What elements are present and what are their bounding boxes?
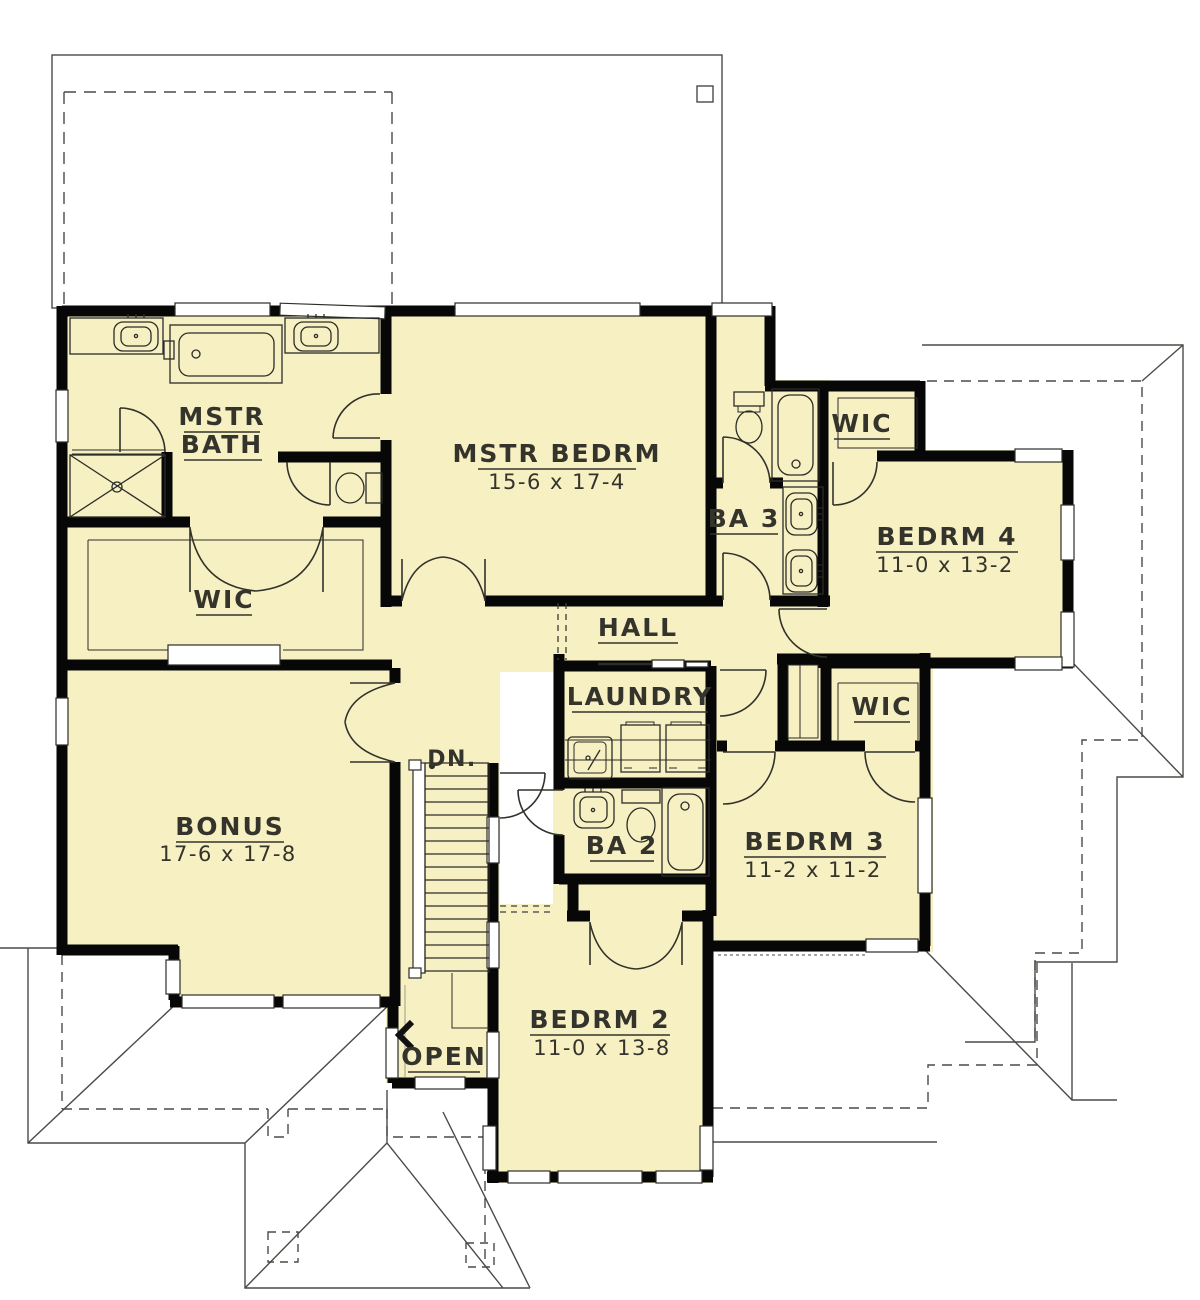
window	[483, 1126, 496, 1170]
window	[455, 303, 640, 316]
laundry-rod-bracket	[686, 662, 708, 667]
window	[175, 303, 270, 316]
room-label-bedrm4: BEDRM 4	[876, 522, 1017, 551]
room-label-hall: HALL	[598, 613, 678, 642]
room-label-bonus: BONUS	[175, 812, 285, 841]
stair-railing	[413, 763, 425, 973]
room-dims-bedrm4: 11-0 x 13-2	[876, 553, 1014, 577]
room-label-wic-master: WIC	[193, 585, 254, 614]
window	[866, 939, 918, 952]
floor-plan-drawing: MSTR BATH MSTR BEDRM 15-6 x 17-4 WIC BA …	[0, 0, 1200, 1300]
room-label-mstr-bath-2: BATH	[181, 430, 263, 459]
room-label-laundry: LAUNDRY	[567, 682, 713, 711]
roof-top-outline	[52, 55, 722, 308]
roof-right-lower-dashed	[713, 963, 1037, 1108]
window	[1061, 612, 1074, 667]
room-label-wic-bedrm4: WIC	[831, 409, 892, 438]
window	[700, 1126, 713, 1170]
room-label-mstr-bedrm: MSTR BEDRM	[453, 439, 662, 468]
room-label-open: OPEN	[401, 1042, 487, 1071]
room-dims-mstr-bedrm: 15-6 x 17-4	[488, 470, 626, 494]
window	[712, 303, 772, 316]
chimney-marker	[697, 86, 713, 102]
floor-plan-page: MSTR BATH MSTR BEDRM 15-6 x 17-4 WIC BA …	[0, 0, 1200, 1300]
window	[558, 1171, 642, 1183]
laundry-rod-bracket	[652, 660, 684, 668]
room-dims-bonus: 17-6 x 17-8	[159, 842, 297, 866]
window	[508, 1171, 550, 1183]
room-label-bedrm2: BEDRM 2	[529, 1005, 670, 1034]
room-label-bedrm3: BEDRM 3	[744, 827, 885, 856]
room-dims-bedrm3: 11-2 x 11-2	[744, 858, 882, 882]
newel-post	[409, 760, 421, 770]
window	[1015, 657, 1062, 670]
window	[918, 798, 932, 893]
stairs-dn-label: DN.	[427, 747, 477, 772]
window	[56, 698, 68, 745]
window	[56, 390, 68, 442]
room-dims-bedrm2: 11-0 x 13-8	[533, 1036, 671, 1060]
newel-post	[409, 968, 421, 978]
room-label-ba3: BA 3	[708, 504, 781, 533]
window	[182, 995, 274, 1008]
window	[1015, 449, 1062, 462]
window	[487, 1032, 499, 1078]
window	[166, 960, 180, 994]
room-label-wic-bedrm3: WIC	[851, 692, 912, 721]
roof-dashed-notches	[268, 1232, 494, 1267]
window	[1061, 505, 1074, 560]
room-label-ba2: BA 2	[586, 831, 659, 860]
built-in-niche	[168, 645, 280, 665]
roof-top-dashed	[64, 92, 392, 308]
window	[415, 1077, 465, 1089]
window	[283, 995, 380, 1008]
room-label-mstr-bath-1: MSTR	[178, 402, 265, 431]
window	[656, 1171, 702, 1183]
